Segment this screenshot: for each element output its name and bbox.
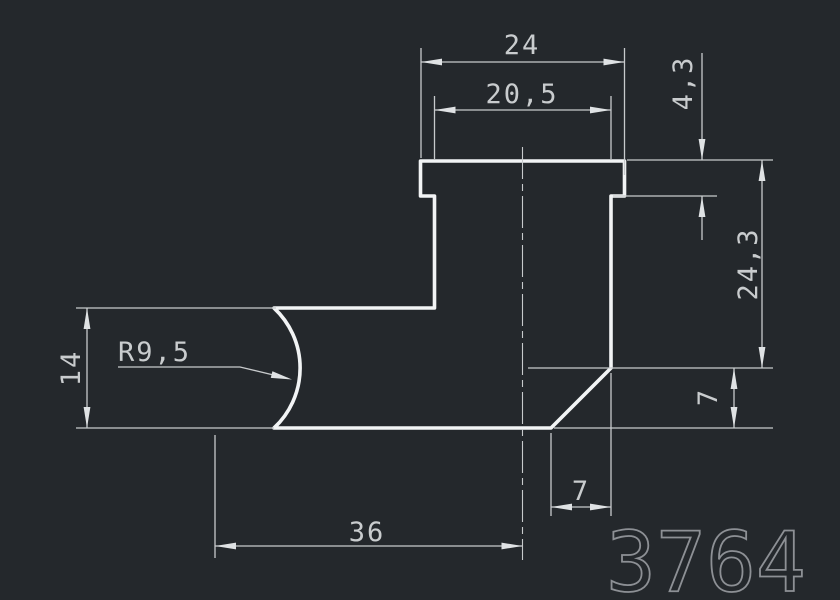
dim-arrowhead [502, 543, 523, 550]
dim-arrowhead [551, 504, 572, 511]
drawing-number: 3764 [606, 514, 806, 600]
dim-inner-width-label: 20,5 [485, 79, 558, 110]
dim-lip-depth: 4,3 [668, 53, 705, 240]
dim-chamfer-height-label: 7 [693, 388, 724, 406]
dim-arrowhead [699, 139, 706, 160]
part-outline-profile [274, 161, 625, 428]
dim-left-height: 14 [56, 308, 90, 428]
dim-arrowhead [84, 407, 91, 428]
dim-chamfer-width-label: 7 [572, 476, 590, 507]
cad-drawing-canvas: 24 20,5 4,3 24,3 7 7 [0, 0, 840, 600]
dim-arrowhead [435, 107, 456, 114]
leader-arrowhead [271, 371, 292, 379]
dim-arrowhead [759, 347, 766, 368]
cad-viewport: 24 20,5 4,3 24,3 7 7 [0, 0, 840, 600]
dim-arrowhead [421, 59, 442, 66]
dim-corner-radius-label: R9,5 [118, 337, 191, 368]
dim-left-height-label: 14 [56, 350, 87, 387]
dim-arrowhead [215, 543, 236, 550]
dim-base-length-label: 36 [349, 517, 386, 548]
dim-chamfer-height: 7 [693, 368, 737, 428]
leader-line [118, 367, 288, 379]
dim-base-length: 36 [215, 517, 523, 549]
dim-chamfer-width: 7 [551, 476, 611, 510]
dim-corner-radius: R9,5 [118, 337, 292, 380]
extension-lines [76, 48, 773, 560]
dim-lip-depth-label: 4,3 [668, 56, 699, 111]
dim-inner-width: 20,5 [435, 79, 612, 113]
dim-arrowhead [759, 160, 766, 181]
dim-arrowhead [590, 107, 611, 114]
dim-arrowhead [731, 407, 738, 428]
dim-right-height-label: 24,3 [733, 227, 764, 300]
dim-arrowhead [731, 368, 738, 389]
dim-arrowhead [590, 504, 611, 511]
dim-outer-width: 24 [421, 30, 625, 65]
dim-outer-width-label: 24 [504, 30, 541, 61]
dim-arrowhead [604, 59, 625, 66]
dim-right-height: 24,3 [733, 160, 765, 368]
dim-arrowhead [699, 196, 706, 217]
dim-arrowhead [84, 308, 91, 329]
